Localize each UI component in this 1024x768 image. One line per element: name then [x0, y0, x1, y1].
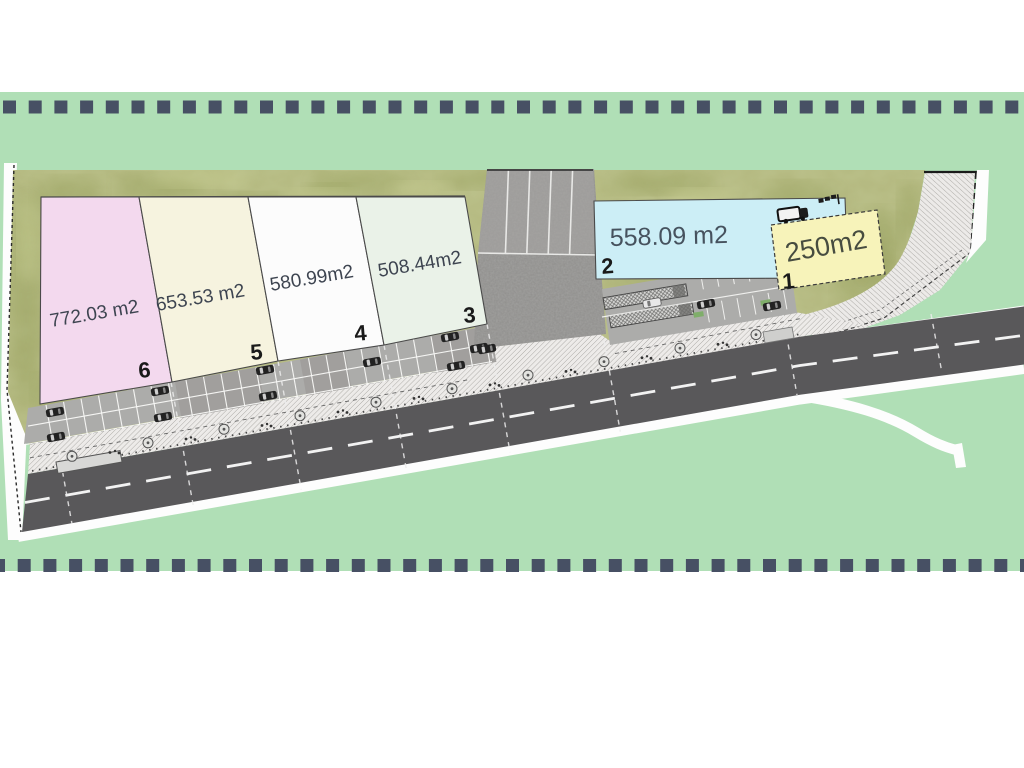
svg-text:1: 1	[781, 268, 795, 294]
svg-text:3: 3	[462, 302, 476, 328]
svg-text:558.09 m2: 558.09 m2	[609, 221, 728, 252]
svg-text:5: 5	[249, 339, 263, 365]
svg-text:6: 6	[137, 357, 151, 383]
svg-text:2: 2	[600, 253, 614, 279]
